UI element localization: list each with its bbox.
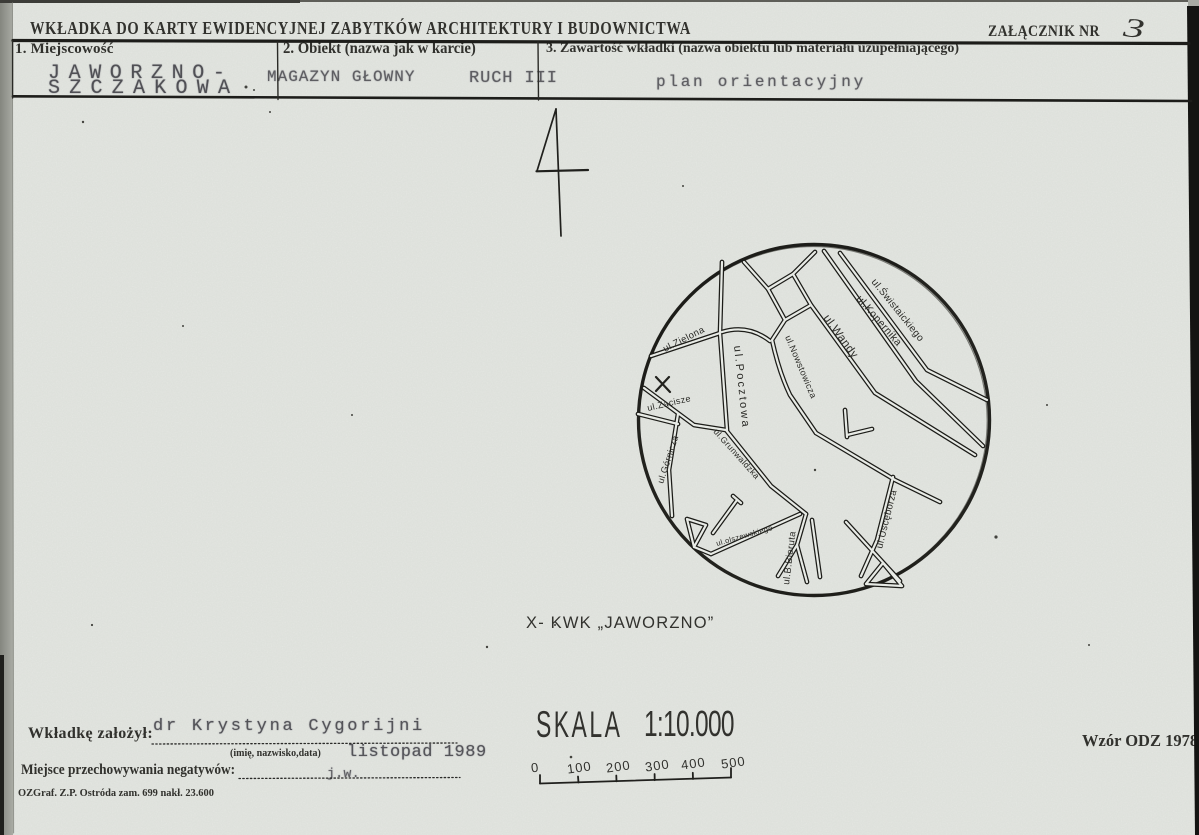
svg-text:ul.olszewskiego: ul.olszewskiego [715, 523, 774, 548]
svg-text:ul.B.Bieruta: ul.B.Bieruta [781, 530, 799, 585]
svg-text:ul.Uscęborza: ul.Uscęborza [874, 488, 899, 549]
svg-text:ul.Wandy: ul.Wandy [821, 313, 861, 361]
svg-text:ul.Pocztowa: ul.Pocztowa [731, 345, 752, 429]
svg-text:ul.Grunwaldzka: ul.Grunwaldzka [712, 427, 762, 481]
